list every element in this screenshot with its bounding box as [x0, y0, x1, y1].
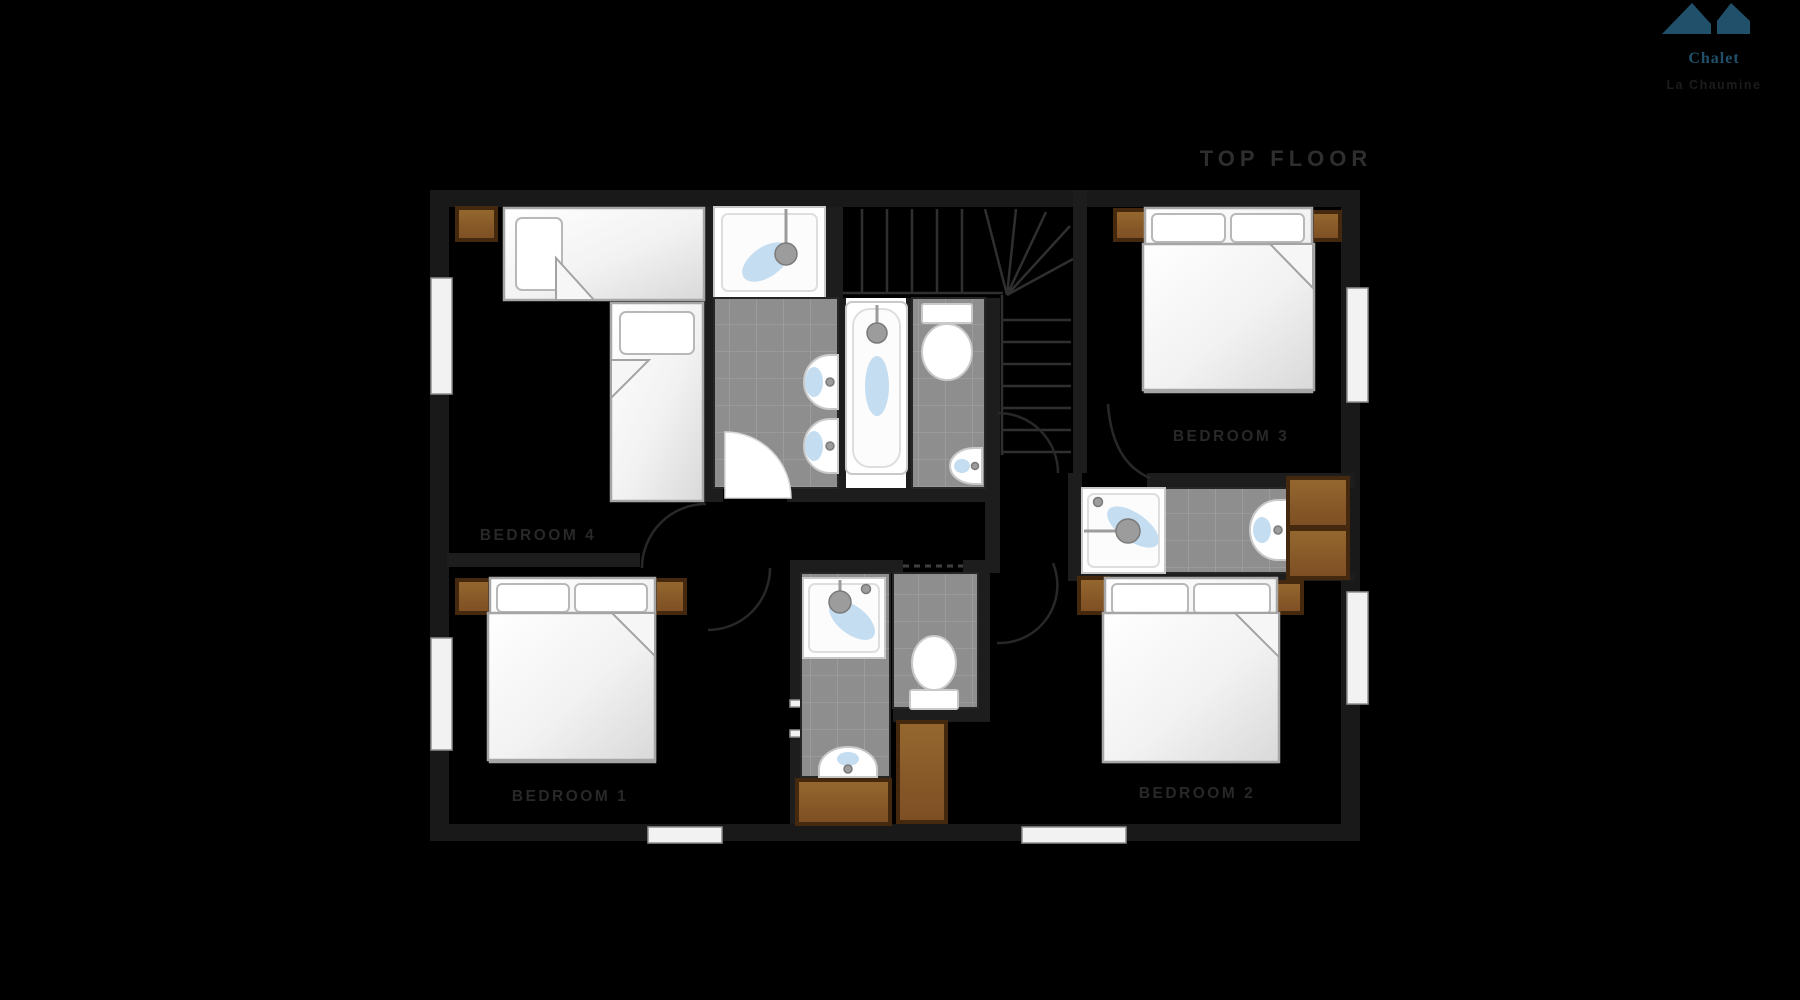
wc-room: [893, 566, 978, 822]
bathtub: [846, 298, 907, 488]
logo-name-line1: Chalet: [1688, 50, 1739, 67]
interior-wall: [893, 708, 990, 722]
sink-water: [1253, 517, 1271, 543]
ensuite-bathroom: [1082, 478, 1348, 578]
nightstand: [457, 580, 490, 613]
toilet-bowl: [922, 324, 972, 380]
nightstand: [1115, 210, 1148, 240]
nightstand: [1079, 578, 1108, 613]
nightstand: [1312, 212, 1340, 240]
floor-plan-page: BEDROOM 4 BEDROOM 1: [0, 0, 1800, 1000]
pillow: [1231, 214, 1304, 242]
sink-water: [837, 752, 859, 766]
bedroom-2: BEDROOM 2: [997, 563, 1302, 802]
exterior-wall-bottom: [430, 824, 1360, 841]
sink-tap-icon: [844, 765, 852, 773]
room-label-bedroom-2: BEDROOM 2: [1139, 785, 1255, 802]
wardrobe: [1288, 529, 1348, 578]
logo-name-line2: La Chaumine: [1667, 78, 1762, 92]
family-bathroom: [714, 207, 985, 498]
bedroom-1: BEDROOM 1: [457, 578, 685, 805]
sink-tap-icon: [972, 463, 979, 470]
sink-water: [805, 367, 823, 397]
door-arc: [642, 504, 706, 568]
pillow: [575, 584, 647, 612]
duvet: [488, 613, 655, 760]
shower: [803, 578, 885, 658]
duvet: [1143, 244, 1314, 390]
room-label-bedroom-4: BEDROOM 4: [480, 527, 596, 544]
floor-plan-drawing: BEDROOM 4 BEDROOM 1: [0, 0, 1800, 1000]
double-bed: [1143, 208, 1314, 392]
window: [648, 827, 722, 843]
page-title: TOP FLOOR: [1200, 146, 1373, 171]
window: [431, 638, 452, 750]
door-arc: [998, 413, 1058, 473]
mountain-logo-icon: [1717, 3, 1750, 34]
vanity-cabinet: [797, 780, 890, 824]
shower: [714, 207, 825, 298]
wardrobe: [1288, 478, 1348, 527]
interior-wall: [978, 560, 990, 722]
sink-tap-icon: [826, 442, 834, 450]
shower-head-icon: [775, 243, 797, 265]
shower-head-icon: [1116, 519, 1140, 543]
shower-control-icon: [862, 585, 871, 594]
room-label-bedroom-3: BEDROOM 3: [1173, 428, 1289, 445]
single-bed: [611, 303, 703, 501]
room-label-bedroom-1: BEDROOM 1: [512, 788, 628, 805]
toilet-cistern: [910, 690, 958, 709]
interior-wall: [825, 207, 843, 298]
window: [1347, 288, 1368, 402]
exterior-wall-top: [430, 190, 1360, 207]
door-arc: [997, 563, 1057, 643]
pillow: [497, 584, 569, 612]
double-bed: [1103, 578, 1279, 762]
bathtub-tap-icon: [867, 323, 887, 343]
door-arc: [1108, 404, 1150, 478]
nightstand: [655, 580, 685, 613]
interior-wall: [787, 488, 1000, 502]
door-arc: [708, 568, 770, 630]
pillow: [1112, 584, 1188, 614]
interior-wall: [447, 553, 640, 567]
mountain-logo-icon: [1662, 3, 1711, 34]
logo: Chalet La Chaumine: [1662, 3, 1762, 92]
pillow: [620, 312, 694, 354]
sink-tap-icon: [1274, 526, 1282, 534]
interior-wall: [1068, 473, 1082, 581]
sink-water: [805, 431, 823, 461]
pillow: [1194, 584, 1270, 614]
toilet-bowl: [912, 636, 956, 690]
bathtub-water: [865, 356, 889, 416]
shower-room: [797, 573, 890, 824]
storage-cabinet: [898, 722, 946, 822]
interior-wall: [1073, 190, 1087, 473]
shower-head-icon: [829, 591, 851, 613]
duvet: [1103, 613, 1279, 762]
window: [431, 278, 452, 394]
window: [1347, 592, 1368, 704]
sink-water: [954, 459, 970, 473]
single-bed: [504, 208, 704, 300]
pillow: [1152, 214, 1225, 242]
interior-wall: [838, 298, 846, 488]
shower-control-icon: [1094, 498, 1103, 507]
double-bed: [488, 578, 655, 762]
toilet: [910, 636, 958, 709]
window: [1022, 827, 1126, 843]
nightstand: [457, 208, 496, 240]
interior-wall: [790, 560, 903, 573]
sink-tap-icon: [826, 378, 834, 386]
toilet-cistern: [922, 304, 972, 323]
shower: [1082, 488, 1166, 573]
toilet: [922, 304, 972, 380]
interior-wall: [985, 298, 1000, 573]
